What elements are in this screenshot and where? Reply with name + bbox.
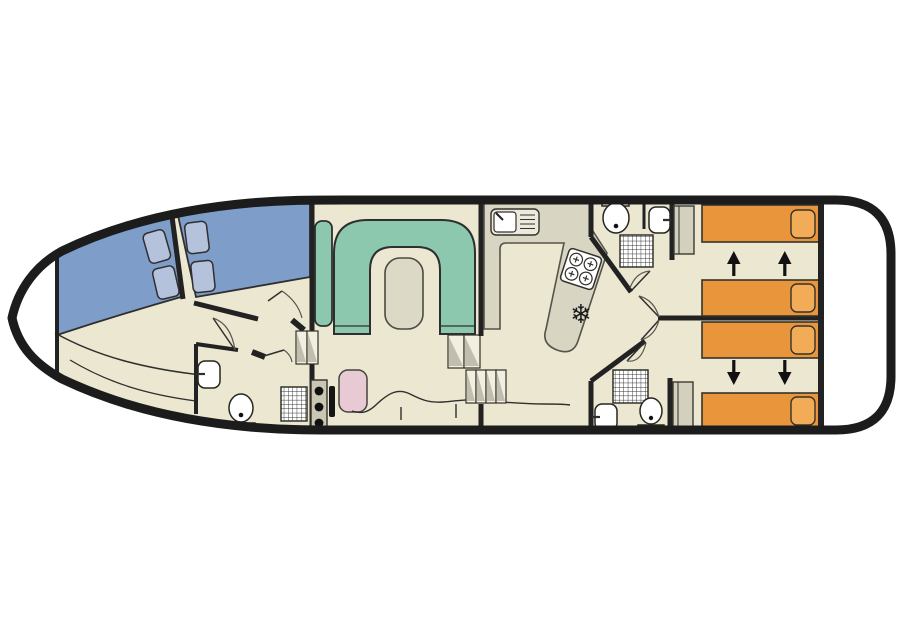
steps-forward xyxy=(296,331,318,364)
toilet xyxy=(229,394,253,422)
pillow xyxy=(791,326,815,354)
toilet-flush-dot xyxy=(239,413,244,418)
toilet-flush-dot xyxy=(614,224,619,229)
steps-midship-upper xyxy=(448,335,480,368)
pillow xyxy=(190,260,215,293)
toilet-flush-dot xyxy=(649,416,653,420)
shower-grate xyxy=(613,370,648,403)
steering-wheel xyxy=(329,386,335,417)
wardrobe xyxy=(674,206,694,254)
pillow xyxy=(791,210,815,238)
helm-seat xyxy=(339,370,367,412)
galley-sink xyxy=(491,209,539,235)
helm-control-knob xyxy=(315,387,324,396)
freezer-snowflake-icon: ❄ xyxy=(570,300,592,330)
saloon-table xyxy=(385,258,423,329)
shower-grate xyxy=(620,235,653,267)
wardrobe xyxy=(673,382,693,428)
shower-grate xyxy=(281,387,307,421)
boat-floor-plan: ❄ xyxy=(0,0,901,640)
pillow xyxy=(184,221,210,254)
toilet xyxy=(603,203,629,233)
steps-midship-lower xyxy=(466,370,506,403)
pillow xyxy=(791,397,815,425)
helm-control-knob xyxy=(315,403,324,412)
side-bench xyxy=(315,221,332,326)
floor-plan-canvas: ❄ xyxy=(0,0,901,640)
pillow xyxy=(791,284,815,312)
